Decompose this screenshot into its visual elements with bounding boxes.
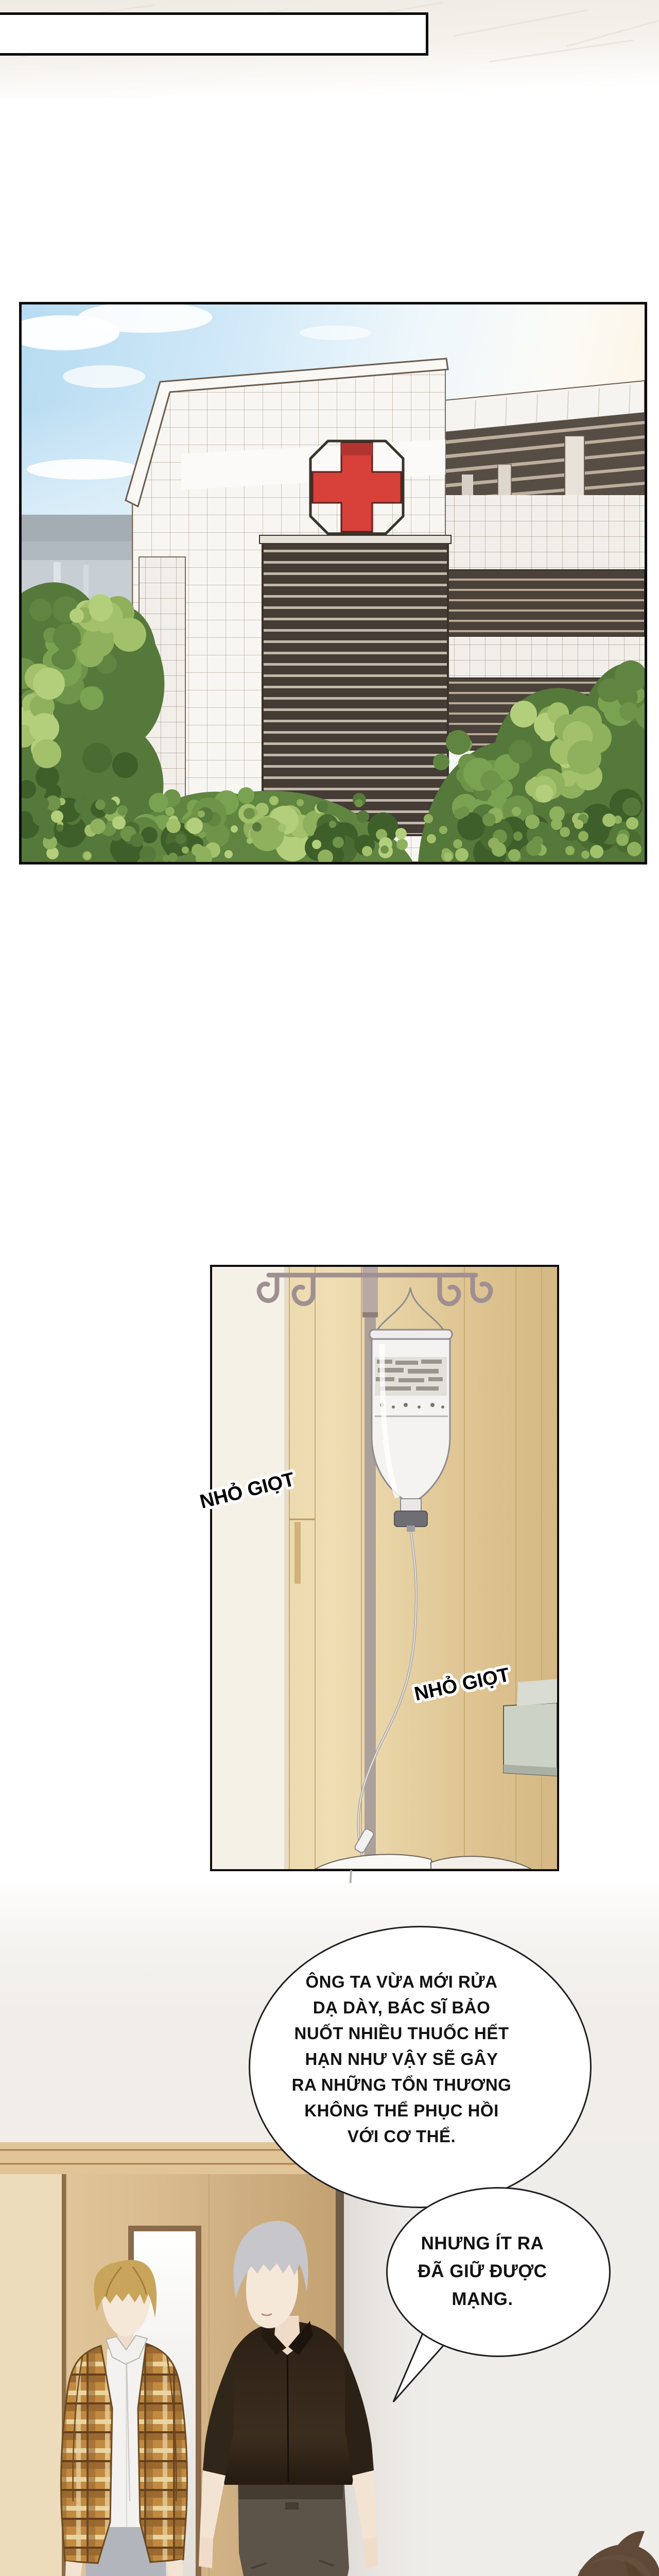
svg-text:NHỎ GIỌT: NHỎ GIỌT — [412, 1663, 512, 1705]
svg-text:NHỎ GIỌT: NHỎ GIỌT — [198, 1468, 297, 1513]
